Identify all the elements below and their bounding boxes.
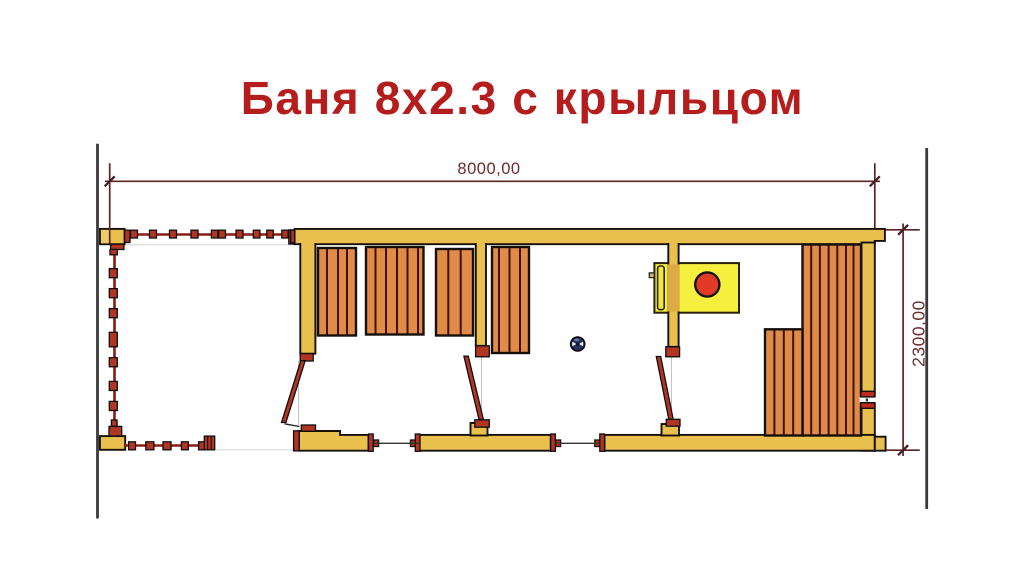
svg-text:Баня 8х2.3 с крыльцом: Баня 8х2.3 с крыльцом xyxy=(241,72,805,124)
svg-text:2300,00: 2300,00 xyxy=(909,300,929,367)
svg-text:8000,00: 8000,00 xyxy=(457,160,520,178)
